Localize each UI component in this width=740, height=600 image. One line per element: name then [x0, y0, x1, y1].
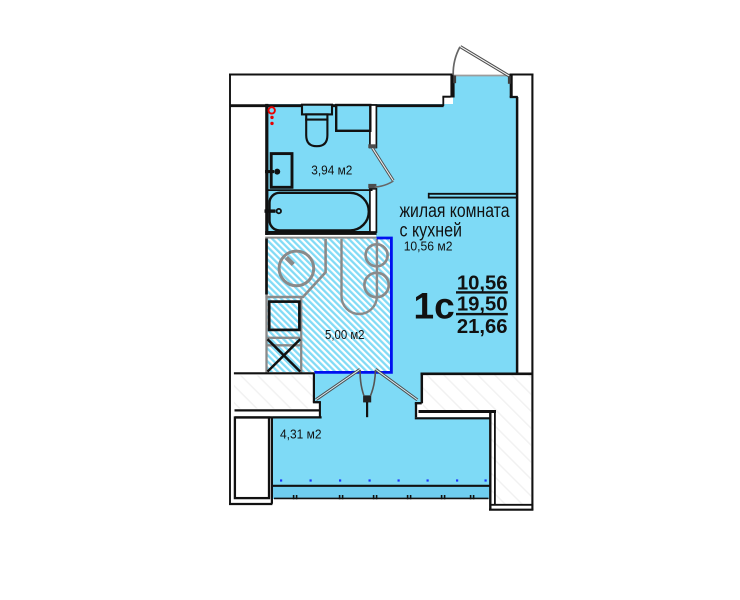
svg-text:5,00 м2: 5,00 м2: [325, 327, 365, 342]
svg-text:1с: 1с: [414, 286, 455, 327]
svg-text:3,94 м2: 3,94 м2: [311, 163, 352, 178]
svg-text:10,56 м2: 10,56 м2: [404, 238, 453, 253]
svg-text:19,50: 19,50: [457, 294, 508, 316]
svg-text:21,66: 21,66: [457, 316, 508, 338]
svg-text:4,31 м2: 4,31 м2: [280, 427, 322, 442]
svg-text:жилая комната: жилая комната: [400, 201, 510, 222]
